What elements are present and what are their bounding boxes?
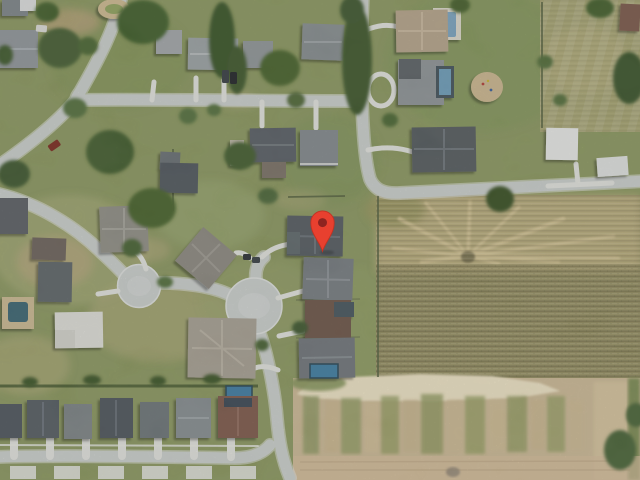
map-pin[interactable] [309, 210, 336, 255]
pin-body[interactable] [310, 210, 333, 251]
map-canvas[interactable] [0, 0, 640, 480]
pin-inner-dot [318, 218, 327, 227]
